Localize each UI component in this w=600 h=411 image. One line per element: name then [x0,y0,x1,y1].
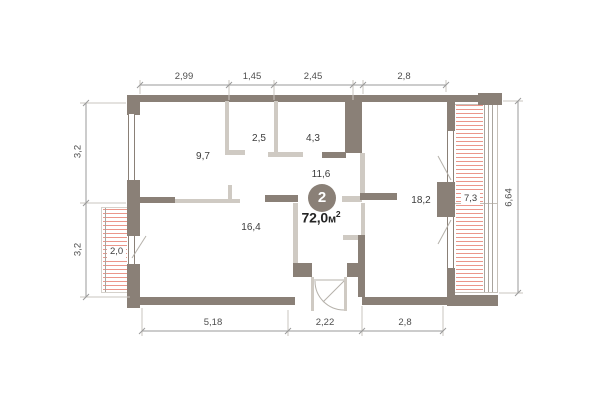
dimension-label: 6,64 [504,178,515,218]
partition [225,101,229,151]
total-area-unit: м [328,214,336,226]
partition [311,277,314,311]
door-swing-lines [132,156,451,310]
room-area-label: 16,4 [229,222,273,234]
wall-segment [345,101,362,153]
dimension-label: 2,45 [289,71,337,82]
dimension-label: 2,99 [160,71,208,82]
dimension-label: 3,2 [73,230,84,270]
right-balcony-glazing-line [488,105,489,292]
left-balcony-glazing-line [105,208,106,292]
partition [361,203,365,236]
room-area-label: 2,5 [237,133,281,145]
total-area-value: 72,0 [302,210,328,226]
dimension-label: 2,22 [301,317,349,328]
wall-segment [127,95,478,102]
dimension-label: 1,45 [228,71,276,82]
window [128,114,135,182]
room-area-label: 11,6 [299,169,343,181]
partition [342,196,362,202]
partition [274,101,278,155]
wall-segment [131,197,175,203]
wall-segment [293,263,312,277]
right-balcony-bottom-line [455,292,498,293]
wall-segment [347,263,363,277]
dimension-label: 5,18 [189,317,237,328]
partition [344,277,347,311]
total-area-power: 2 [336,209,341,219]
balcony-door [128,236,135,264]
balcony-door [447,131,454,182]
wall-segment [127,185,140,236]
partition [268,152,303,157]
dimension-label: 2,8 [380,71,428,82]
floor-plan-canvas: 2,99 1,45 2,45 2,8 5,18 2,22 2,8 3,2 3,2… [0,0,600,411]
wall-segment [447,101,455,131]
wall-segment [322,152,346,158]
wall-segment [447,268,455,298]
wall-segment [478,93,502,105]
partition [360,153,365,193]
dimension-label: 3,2 [73,132,84,172]
room-area-label: 4,3 [291,133,335,145]
room-area-label: 7,3 [461,193,480,205]
wall-segment [131,297,295,305]
partition [175,199,240,203]
right-balcony-glazing-line [492,105,493,292]
partition [225,150,245,155]
dimension-label: 2,8 [381,317,429,328]
entrance-door-arc [315,281,344,310]
partition [228,185,232,199]
right-balcony-glazing-line [484,105,485,292]
total-area-label: 72,0м2 [283,207,359,228]
balcony-door [447,217,454,268]
room-area-label: 18,2 [399,195,443,207]
right-balcony-outer-line [497,104,498,293]
room-area-label: 9,7 [181,151,225,163]
wall-segment [360,193,397,200]
wall-segment [265,195,298,202]
room-area-label: 2,0 [107,246,126,258]
